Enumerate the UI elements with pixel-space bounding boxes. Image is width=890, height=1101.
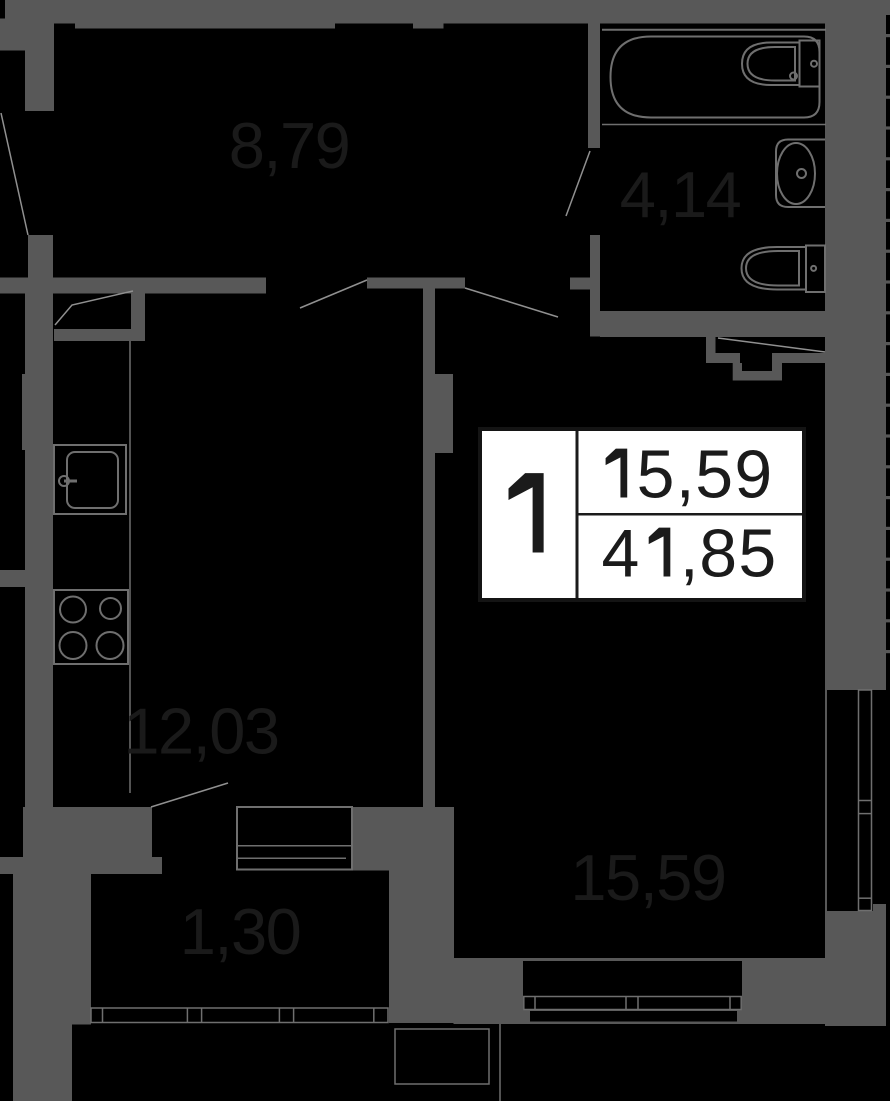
svg-text:5: 5: [738, 516, 776, 592]
svg-text:15,59: 15,59: [570, 841, 725, 914]
svg-text:1,30: 1,30: [180, 895, 301, 968]
svg-text:5: 5: [637, 437, 675, 513]
svg-text:,: ,: [676, 437, 695, 513]
svg-text:12,03: 12,03: [123, 695, 278, 768]
svg-text:9: 9: [734, 437, 772, 513]
svg-text:4,14: 4,14: [620, 158, 741, 231]
svg-text:4: 4: [602, 516, 640, 592]
svg-text:5: 5: [695, 437, 733, 513]
svg-text:8,79: 8,79: [229, 109, 350, 182]
svg-text:8: 8: [699, 516, 737, 592]
svg-text:,: ,: [680, 516, 699, 592]
